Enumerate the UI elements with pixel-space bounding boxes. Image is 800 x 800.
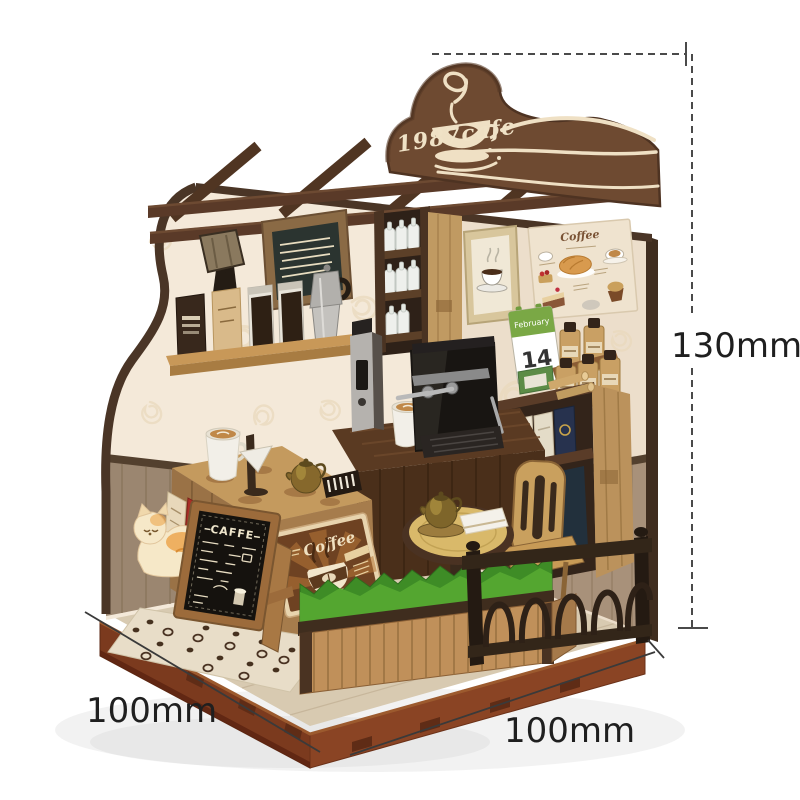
framed-cup-picture bbox=[464, 226, 520, 324]
coffee-bag bbox=[176, 294, 206, 358]
coffee-grinder bbox=[350, 318, 384, 432]
coffee-packet bbox=[212, 288, 242, 354]
depth-label: 100mm bbox=[504, 711, 635, 751]
product-photo: Coffee February 14 bbox=[0, 0, 800, 800]
bean-jar bbox=[278, 281, 304, 345]
width-label: 100mm bbox=[86, 691, 217, 731]
bean-jar bbox=[248, 285, 274, 349]
height-label: 130mm bbox=[671, 326, 800, 366]
dessert-menu-poster: Coffee bbox=[528, 219, 638, 320]
